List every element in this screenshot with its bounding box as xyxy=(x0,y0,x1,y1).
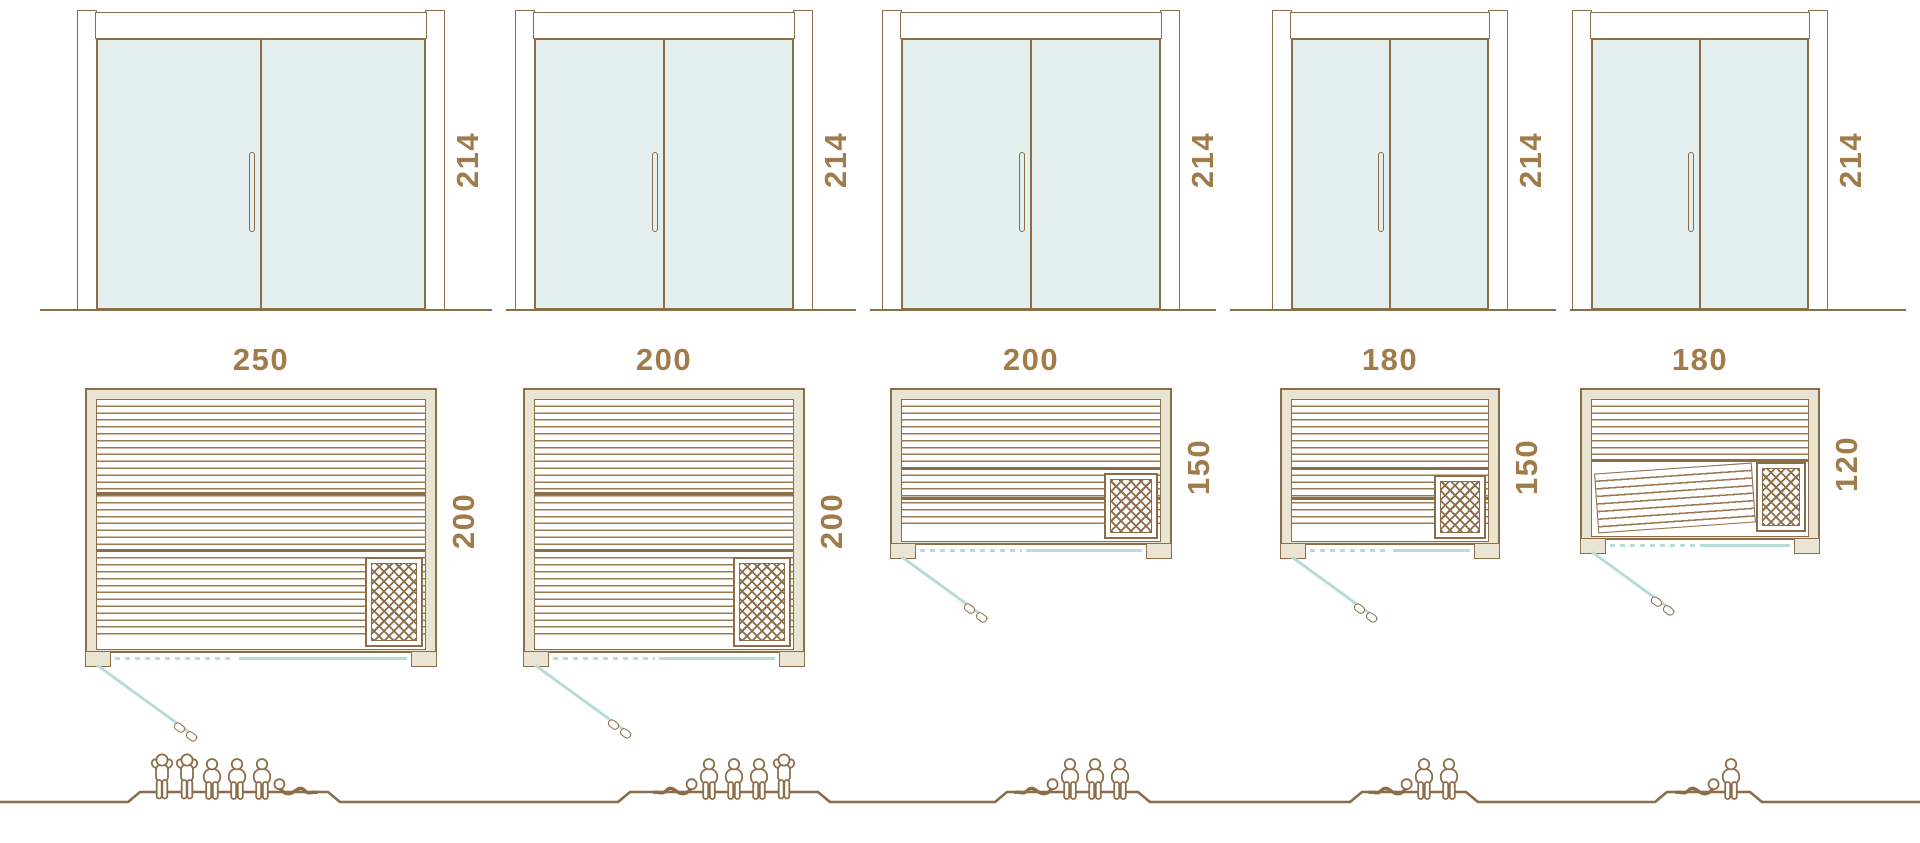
height-label: 214 xyxy=(820,120,850,200)
width-label: 250 xyxy=(85,344,437,375)
heater-grid xyxy=(1440,481,1480,533)
depth-label: 200 xyxy=(816,481,846,561)
elevation-ground-line xyxy=(506,309,856,311)
wall-stub-right xyxy=(1794,538,1820,554)
glass-front-solid-line xyxy=(239,657,407,660)
door-glass xyxy=(535,39,793,309)
wall-stub-right xyxy=(411,651,437,667)
handle-part xyxy=(184,729,198,743)
person-lying-icon xyxy=(649,776,699,800)
person-lying-icon xyxy=(1010,776,1060,800)
person-lying-icon xyxy=(1671,776,1721,800)
figure-holder xyxy=(1671,776,1721,800)
door-handle-icon xyxy=(1378,152,1384,232)
glass-front-dashed-line xyxy=(115,657,235,660)
heater-icon xyxy=(1434,475,1486,539)
width-label: 200 xyxy=(890,344,1172,375)
bench-divider xyxy=(1292,467,1488,470)
door-elevation xyxy=(77,10,445,310)
depth-label: 200 xyxy=(448,481,478,561)
door-post-right xyxy=(793,10,813,310)
door-handle-plan-icon xyxy=(1353,602,1380,624)
door-glass xyxy=(902,39,1160,309)
heater-grid xyxy=(739,563,785,641)
door-glass xyxy=(1292,39,1488,309)
door-post-left xyxy=(1272,10,1292,310)
figure-holder xyxy=(1364,776,1414,800)
lounger-bench xyxy=(1594,463,1756,534)
width-label: 200 xyxy=(523,344,805,375)
figure-holder xyxy=(1010,776,1060,800)
glass-front-solid-line xyxy=(1393,549,1470,552)
door-header xyxy=(95,12,427,39)
door-post-left xyxy=(77,10,97,310)
glass-front-solid-line xyxy=(659,657,775,660)
door-post-left xyxy=(1572,10,1592,310)
heater-grid xyxy=(1762,468,1800,526)
door-post-left xyxy=(515,10,535,310)
bench-slats xyxy=(1592,400,1808,459)
door-mullion xyxy=(260,40,262,308)
handle-part xyxy=(963,602,977,616)
bench-divider xyxy=(535,549,793,552)
door-post-right xyxy=(1488,10,1508,310)
wall-stub-right xyxy=(1474,543,1500,559)
figure-holder xyxy=(1716,758,1746,800)
plan-interior xyxy=(534,399,794,650)
figure-holder xyxy=(272,776,322,800)
door-elevation xyxy=(515,10,813,310)
heater-icon xyxy=(733,557,791,647)
door-handle-icon xyxy=(652,152,658,232)
door-handle-plan-icon xyxy=(1649,595,1676,617)
bench-divider xyxy=(535,492,793,495)
handle-part xyxy=(1365,611,1379,625)
elevation-ground-line xyxy=(40,309,492,311)
door-header xyxy=(533,12,795,39)
glass-front-dashed-line xyxy=(1310,549,1389,552)
sauna-size-diagram: 2142502002142002002142001502141801502141… xyxy=(0,0,1920,843)
handle-part xyxy=(606,718,620,732)
person-sitting-icon xyxy=(1105,758,1135,800)
door-post-right xyxy=(1160,10,1180,310)
door-header xyxy=(1290,12,1490,39)
glass-front-solid-line xyxy=(1026,549,1142,552)
plan-interior xyxy=(96,399,426,650)
height-label: 214 xyxy=(1187,120,1217,200)
door-handle-icon xyxy=(249,152,255,232)
door-elevation xyxy=(882,10,1180,310)
heater-icon xyxy=(365,557,423,647)
person-standing-icon xyxy=(769,752,799,800)
bench-divider xyxy=(97,549,425,552)
glass-front-solid-line xyxy=(1700,544,1790,547)
door-mullion xyxy=(1030,40,1032,308)
plan-top-view xyxy=(890,388,1172,545)
glass-front-dashed-line xyxy=(1610,544,1696,547)
plan-top-view xyxy=(1280,388,1500,545)
heater-grid xyxy=(371,563,417,641)
bench-divider xyxy=(902,467,1160,470)
depth-label: 150 xyxy=(1511,427,1541,507)
door-post-right xyxy=(1808,10,1828,310)
heater-icon xyxy=(1756,462,1806,532)
plan-interior xyxy=(1591,399,1809,537)
door-glass xyxy=(97,39,425,309)
plan-top-view xyxy=(523,388,805,653)
height-label: 214 xyxy=(452,120,482,200)
person-sitting-icon xyxy=(1716,758,1746,800)
person-sitting-icon xyxy=(1434,758,1464,800)
door-handle-icon xyxy=(1688,152,1694,232)
depth-label: 150 xyxy=(1183,427,1213,507)
width-label: 180 xyxy=(1280,344,1500,375)
door-mullion xyxy=(663,40,665,308)
door-header xyxy=(900,12,1162,39)
height-label: 214 xyxy=(1515,120,1545,200)
door-handle-plan-icon xyxy=(172,720,199,742)
person-lying-icon xyxy=(272,776,322,800)
heater-grid xyxy=(1110,479,1152,533)
bench-divider xyxy=(97,492,425,495)
elevation-ground-line xyxy=(1230,309,1556,311)
door-mullion xyxy=(1389,40,1391,308)
handle-part xyxy=(1662,603,1676,617)
door-post-right xyxy=(425,10,445,310)
door-elevation xyxy=(1272,10,1508,310)
plan-interior xyxy=(1291,399,1489,542)
plan-interior xyxy=(901,399,1161,542)
elevation-ground-line xyxy=(870,309,1216,311)
height-label: 214 xyxy=(1835,120,1865,200)
elevation-ground-line xyxy=(1570,309,1906,311)
plan-top-view xyxy=(85,388,437,653)
heater-icon xyxy=(1104,473,1158,539)
handle-part xyxy=(172,720,186,734)
glass-front-dashed-line xyxy=(920,549,1022,552)
door-handle-plan-icon xyxy=(606,718,633,740)
figure-holder xyxy=(1105,758,1135,800)
door-glass xyxy=(1592,39,1808,309)
door-elevation xyxy=(1572,10,1828,310)
figure-holder xyxy=(649,776,699,800)
wall-stub-right xyxy=(1146,543,1172,559)
wall-stub-right xyxy=(779,651,805,667)
figure-holder xyxy=(769,752,799,800)
width-label: 180 xyxy=(1580,344,1820,375)
door-post-left xyxy=(882,10,902,310)
handle-part xyxy=(1649,595,1663,609)
person-lying-icon xyxy=(1364,776,1414,800)
door-header xyxy=(1590,12,1810,39)
handle-part xyxy=(1353,602,1367,616)
handle-part xyxy=(975,611,989,625)
handle-part xyxy=(618,726,632,740)
door-handle-plan-icon xyxy=(963,602,990,624)
depth-label: 120 xyxy=(1831,424,1861,504)
plan-top-view xyxy=(1580,388,1820,540)
door-mullion xyxy=(1699,40,1701,308)
figure-holder xyxy=(1434,758,1464,800)
glass-front-dashed-line xyxy=(553,657,655,660)
door-handle-icon xyxy=(1019,152,1025,232)
